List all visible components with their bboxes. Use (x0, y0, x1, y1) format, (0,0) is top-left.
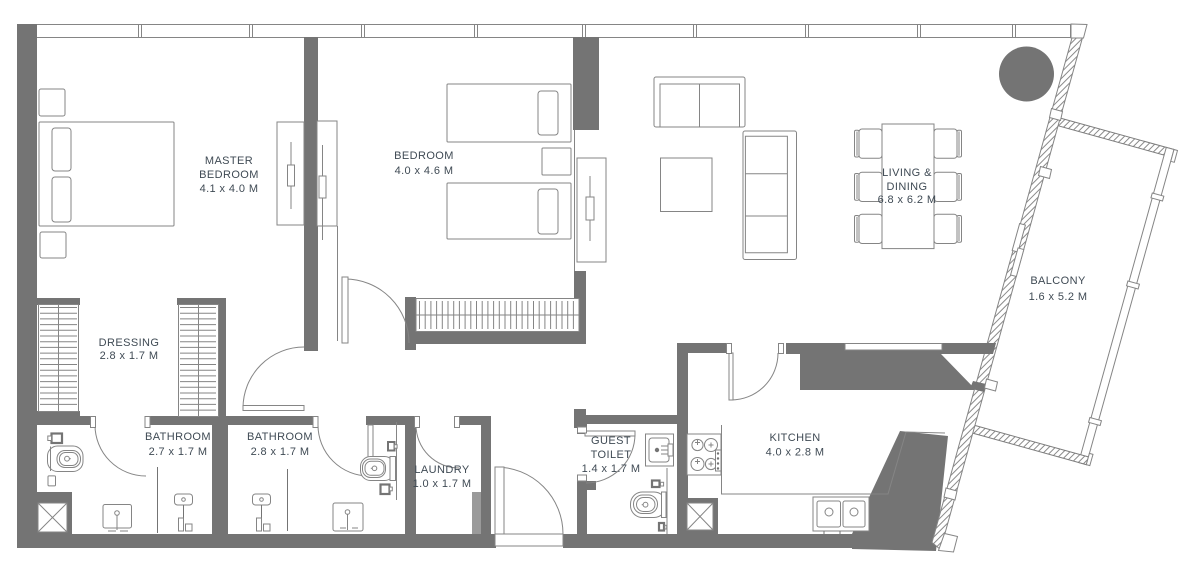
svg-text:DRESSING: DRESSING (99, 337, 160, 349)
svg-text:4.1 x 4.0 M: 4.1 x 4.0 M (200, 183, 259, 195)
svg-text:6.8 x 6.2 M: 6.8 x 6.2 M (878, 194, 937, 206)
svg-text:LAUNDRY: LAUNDRY (414, 464, 469, 476)
svg-text:TOILET: TOILET (591, 449, 632, 461)
svg-text:BALCONY: BALCONY (1030, 275, 1086, 287)
svg-text:BEDROOM: BEDROOM (394, 150, 454, 162)
svg-text:DINING: DINING (887, 181, 928, 193)
svg-text:4.0 x 4.6 M: 4.0 x 4.6 M (395, 165, 454, 177)
svg-text:1.0 x 1.7 M: 1.0 x 1.7 M (413, 478, 472, 490)
svg-text:1.6 x 5.2 M: 1.6 x 5.2 M (1029, 291, 1088, 303)
svg-text:4.0 x 2.8 M: 4.0 x 2.8 M (766, 447, 825, 459)
svg-text:BATHROOM: BATHROOM (145, 431, 211, 443)
svg-text:BEDROOM: BEDROOM (199, 169, 259, 181)
svg-text:KITCHEN: KITCHEN (769, 432, 820, 444)
svg-text:2.8 x 1.7 M: 2.8 x 1.7 M (100, 350, 159, 362)
svg-text:2.8 x 1.7 M: 2.8 x 1.7 M (251, 446, 310, 458)
svg-text:BATHROOM: BATHROOM (247, 431, 313, 443)
svg-text:GUEST: GUEST (591, 435, 631, 447)
svg-text:1.4 x 1.7 M: 1.4 x 1.7 M (582, 463, 641, 475)
svg-text:2.7 x 1.7 M: 2.7 x 1.7 M (149, 446, 208, 458)
svg-text:MASTER: MASTER (205, 155, 253, 167)
svg-text:LIVING &: LIVING & (882, 167, 932, 179)
